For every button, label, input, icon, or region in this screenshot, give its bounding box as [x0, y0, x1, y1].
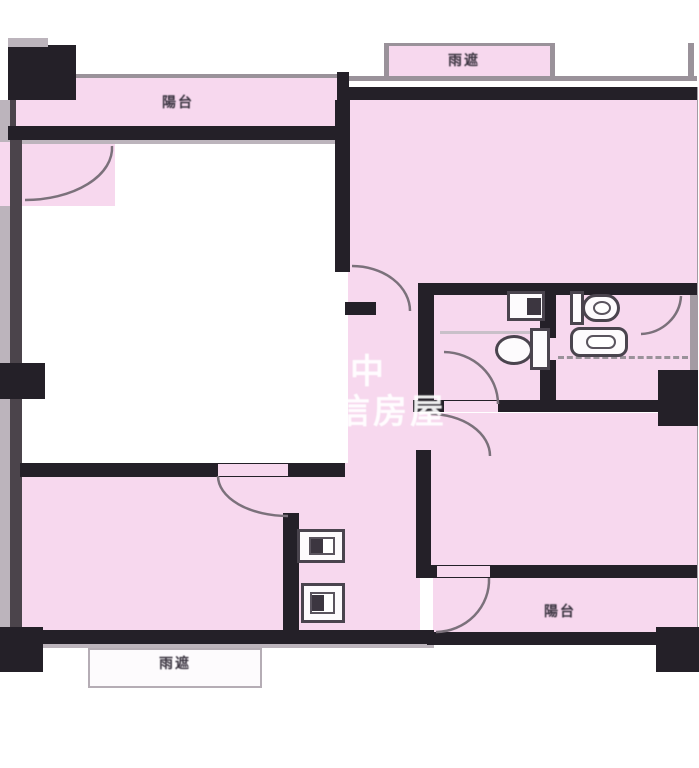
kitchen-sink [297, 529, 345, 563]
wall-living-bedroom-divider [335, 100, 350, 272]
watermark-line2: 信房屋 [336, 384, 447, 433]
washbasin-left-bath [507, 291, 545, 321]
washbasin-faucet [527, 298, 541, 315]
room-bedroom-bottom-left [22, 477, 300, 631]
toilet-right-bowl [582, 294, 620, 322]
toilet-left-bowl [495, 335, 533, 365]
canopy-mid-end [550, 43, 555, 77]
toilet-right-seat [593, 301, 611, 315]
sink-right-basin [586, 335, 616, 349]
pillar-mid-right [658, 370, 698, 426]
label-canopy-top: 雨遮 [424, 50, 504, 70]
entry-door-nook [22, 142, 115, 206]
kitchen-stove-grate [312, 595, 324, 611]
door-gap-balcony-br [437, 566, 490, 577]
kitchen-stove [301, 583, 345, 623]
kitchen-sink-drain [311, 539, 323, 553]
wall-balcony-bottom [8, 126, 347, 140]
pillar-bottom-right [656, 627, 699, 672]
label-balcony-bottom-right: 陽台 [520, 601, 600, 621]
room-bedroom-bottom-right [420, 413, 697, 566]
left-edge-sliver [0, 142, 10, 206]
wall-bottom [14, 630, 434, 644]
living-room-top-line [22, 140, 345, 144]
label-canopy-bottom: 雨遮 [135, 653, 215, 673]
bathtub-line [440, 331, 538, 334]
toilet-left-tank [530, 328, 550, 370]
door-gap-bath-left [444, 401, 498, 412]
pillar-top-left-cap [8, 38, 48, 47]
wall-bedroom-br-left [416, 450, 431, 578]
door-gap-bedroom-bl [218, 464, 288, 476]
canopy-left-end [384, 43, 389, 77]
sink-right-bath [570, 327, 628, 357]
canopy-top-edge-line [386, 43, 553, 46]
wall-bedroom-tr-top [340, 87, 697, 100]
wall-balcony-br-bottom [427, 632, 663, 645]
wall-hallway-stub [345, 302, 376, 315]
wall-living-bottom [20, 463, 345, 477]
label-balcony-top: 陽台 [138, 92, 218, 112]
canopy-top-bottom-line [345, 76, 697, 81]
room-bathrooms [430, 295, 690, 401]
pillar-top-left [8, 45, 76, 100]
room-bedroom-top-right [350, 100, 697, 286]
pillar-mid-left [0, 363, 45, 399]
pillar-bottom-left [0, 627, 43, 672]
canopy-right-end [688, 43, 694, 80]
wall-bath-top [430, 283, 697, 295]
floor-plan: 陽台 雨遮 陽台 雨遮 中 信房屋 [0, 0, 699, 768]
